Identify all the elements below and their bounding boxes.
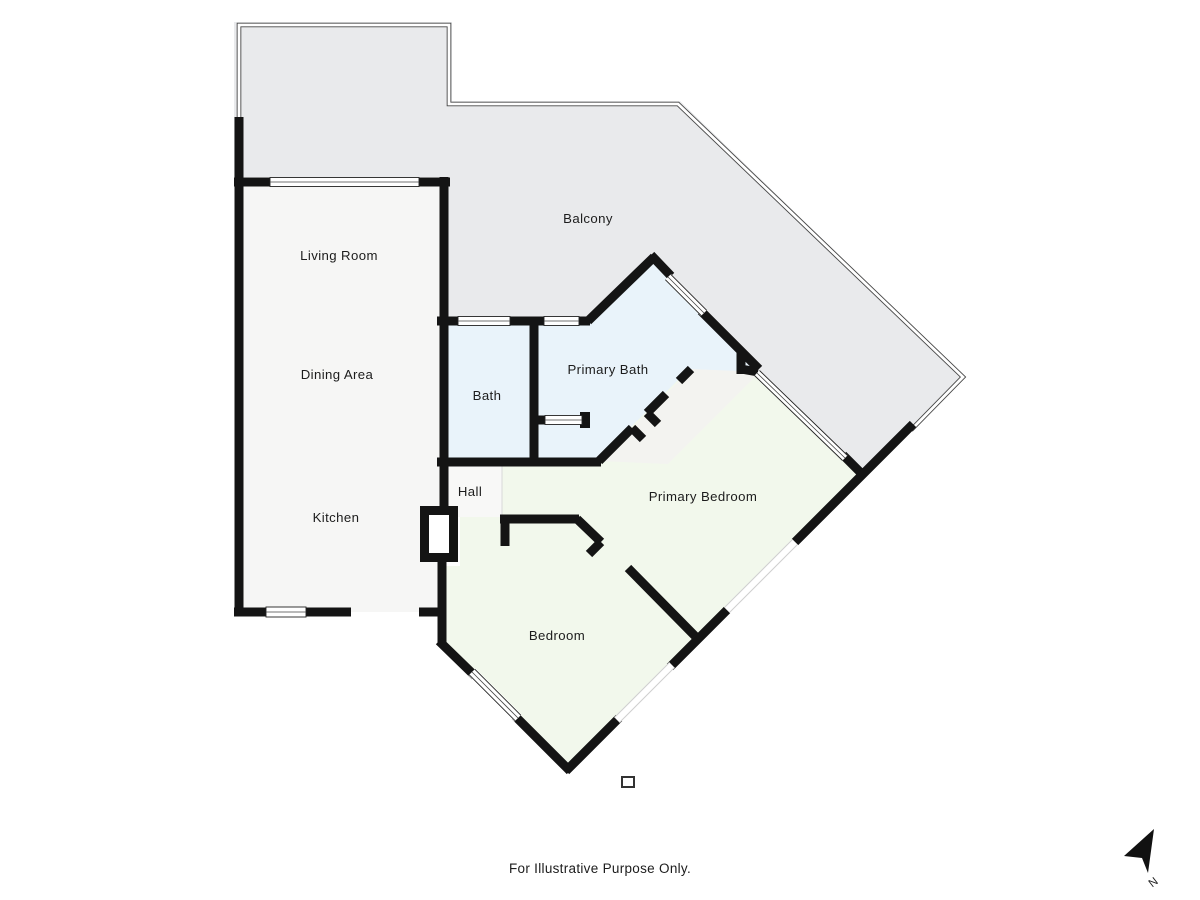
room-label-bedroom: Bedroom: [529, 628, 585, 643]
window-primary-bath-pass: [545, 416, 582, 425]
room-label-living-room: Living Room: [300, 248, 378, 263]
room-label-balcony: Balcony: [563, 211, 613, 226]
window-living-top: [270, 178, 419, 187]
room-label-kitchen: Kitchen: [313, 510, 360, 525]
north-label: N: [1147, 876, 1161, 891]
room-fills: [234, 22, 965, 772]
window-kitchen-bottom: [266, 607, 306, 617]
room-label-dining-area: Dining Area: [301, 367, 374, 382]
room-label-hall: Hall: [458, 484, 482, 499]
living-area-fill: [239, 182, 445, 612]
room-label-primary-bedroom: Primary Bedroom: [649, 489, 758, 504]
room-label-primary-bath: Primary Bath: [567, 362, 648, 377]
window-bath-top-right: [544, 317, 579, 326]
north-arrow: N: [1124, 829, 1161, 890]
floorplan-svg: Balcony Living Room Dining Area Kitchen …: [0, 0, 1200, 900]
north-arrow-icon: [1124, 829, 1154, 873]
door-marker: [622, 777, 634, 787]
floorplan-page: Balcony Living Room Dining Area Kitchen …: [0, 0, 1200, 900]
caption: For Illustrative Purpose Only.: [509, 861, 691, 876]
window-bath-top-left: [458, 317, 510, 326]
room-label-bath: Bath: [473, 388, 502, 403]
